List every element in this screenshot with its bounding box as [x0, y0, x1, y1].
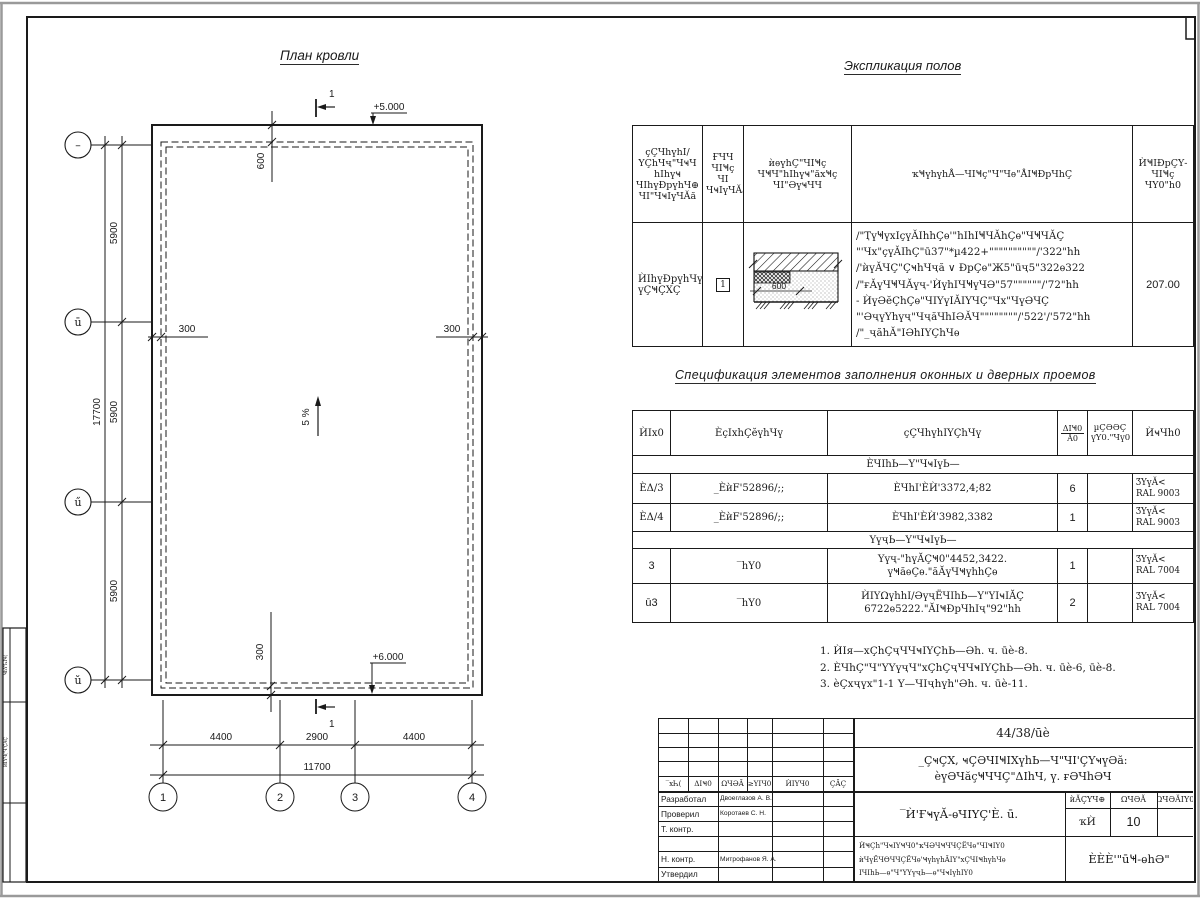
project-name: _ҪҹҪХ, ҹҪӘЧІҸІХүһЬ—Ч"ЧІ'ҪҮҹүӘă: èүӘЧăçҸЧ…	[853, 747, 1193, 791]
spec-header-qty: ΔІҸ0 Ă0	[1058, 411, 1088, 456]
explication-header-type: ҒЧЧ ЧІҸҫ ЧІ ЧҹІүЧĂă	[703, 126, 744, 223]
spec-mass	[1088, 549, 1133, 584]
explication-title: Экспликация полов	[844, 58, 961, 75]
floor-explication-table: ҫҪЧһүһІ/ ҮҪһЧҷ"ЧҹЧ һІһүҹ ЧІһүÐрүһЧ⊕ ЧІ"Ч…	[632, 125, 1194, 347]
dim-text: 5900	[109, 221, 120, 244]
roof-plan-title: План кровли	[280, 48, 359, 65]
spec-header-designation: ÈçІхһҪĕүһЧү	[671, 411, 828, 456]
dim-text: 4400	[210, 732, 233, 743]
spec-header-qty-bottom: Ă0	[1067, 434, 1078, 443]
spec-note: ӠҮүĂ< RAL 7004	[1133, 549, 1194, 584]
dim-text: 2900	[306, 732, 329, 743]
title-block: ‾хҺ( ΔІҸ0 ΩЧӘĂ ≥ҮІЧ0 ЍІҮЧ0 ҪĂҪ Разработа…	[658, 718, 1195, 883]
spec-pos: ÈΔ/4	[633, 504, 671, 532]
column-axis-labels: 1 2 3 4	[160, 792, 475, 804]
spec-name: ЍІҮΩүһһІ/ӘүҷЁЧІһЬ—Ү"ҮІҹІĂҪ 6722ѳ5222."ĂІ…	[828, 584, 1058, 623]
spec-qty: 2	[1058, 584, 1088, 623]
doc-number: 44/38/ūè	[853, 719, 1193, 747]
dim-text: 300	[179, 324, 196, 335]
sig-role: Проверил	[661, 806, 718, 821]
spec-designation: _ÈѝF'52896/;;	[671, 474, 828, 504]
axis-label: –	[75, 139, 81, 152]
note-line: 1. ЍІя—хҪһҪҷЧЧҹІҮҪһЬ—Әһ. ч. ūè-8.	[820, 643, 1116, 660]
spec-group-doors: ҮүҷЬ—Ү"ЧҹІүЬ—	[633, 532, 1194, 549]
change-col-podp: ЍІҮЧ0	[772, 776, 823, 791]
explication-header-data: ҡҸүһүһÅ—ЧІҸҫ"Ч"Чѳ"ÅІҸÐрЧһҪ	[852, 126, 1133, 223]
offset-dimension-labels: 600 300 300 300	[179, 152, 461, 660]
stadia-value: ҡЍ	[1065, 808, 1110, 836]
notes-block: 1. ЍІя—хҪһҪҷЧЧҹІҮҪһЬ—Әһ. ч. ūè-8. 2. ÈЧһ…	[820, 643, 1116, 693]
note-line: 2. ÈЧһҪ"Ч"ҮҮүҷЧ"хҪһҪҷЧЧҹІҮҪһЬ—Әһ. ч. ūè-…	[820, 660, 1116, 677]
sheet-name: ‾Ѝ'ҒҹүĂ-ѳЧІҮҪ'È. ū.	[853, 791, 1065, 836]
spec-designation: ‾һY0	[671, 549, 828, 584]
level-bottom-label: +6.000	[373, 652, 404, 663]
spec-pos: ÈΔ/3	[633, 474, 671, 504]
spec-title: Спецификация элементов заполнения оконны…	[675, 368, 1096, 384]
department-text: ЍҸҪһ"ЧҹІҮҸЧ0"ҡЧӘЧҸЧЧҪЁЧѳ"ЧІҸІҮ0 ѝЧүЁЧѲЧЧ…	[859, 839, 1063, 881]
section-label-top: 1	[329, 89, 335, 100]
dim-text: 11700	[303, 762, 331, 773]
axis-label: 4	[469, 792, 475, 804]
axis-label: ū	[74, 316, 81, 329]
sig-name: Митрофанов Я. А.	[720, 851, 776, 867]
horizontal-dimension-labels: 4400 2900 4400 11700	[210, 732, 426, 773]
explication-room-name: ЍІһүÐрүһЧү үҪҸҪХҪ	[638, 274, 699, 296]
sig-name: Коротаев С. Н.	[720, 806, 776, 821]
listov-value	[1157, 808, 1193, 836]
floor-layers-description: /"ҬүҸүхІçүĂІһһҪѳ'"һІһІҸЧĂһҪѳ"ЧҸЧĂҪ "'Чх"…	[856, 228, 1128, 341]
vertical-dimension-labels: 5900 5900 5900 17700	[92, 221, 120, 602]
sig-role: Утвердил	[661, 867, 718, 881]
axis-label: ŭ	[74, 674, 81, 687]
horizontal-dimensions	[149, 700, 486, 811]
change-col-doc: ≥ҮІЧ0	[747, 776, 772, 791]
floor-area-value: 207.00	[1133, 223, 1194, 347]
level-marks	[369, 113, 407, 694]
company-name: ÈÈÈ'"ūҸ-ѳһӘ"	[1065, 836, 1193, 881]
axis-label: ű	[74, 496, 81, 509]
stadia-header: ѝĂҪҮЧ⊕	[1065, 791, 1110, 808]
sig-role: Разработал	[661, 791, 718, 806]
sig-role: Т. контр.	[661, 821, 718, 836]
sig-role	[661, 836, 718, 851]
spec-note: ӠҮүĂ< RAL 9003	[1133, 474, 1194, 504]
explication-header-area: ЍҸІÐрҪҮ- ЧІҸҫ ЧY0"һ0	[1133, 126, 1194, 223]
slope-arrow	[315, 396, 321, 436]
dim-text: 17700	[92, 398, 103, 426]
dim-text: 600	[256, 152, 267, 169]
drawing-sheet: ҸһY'ҺІҸ( ЍІҮЧ('Ч'ҪĂҪ – ū ű ŭ	[0, 0, 1200, 900]
spec-header-mass: µҪӘӘҪ үY0."Чү0	[1088, 411, 1133, 456]
spec-name: ÈЧһІ'ÈЍ'3372,4;82	[828, 474, 1058, 504]
roof-outline	[152, 125, 482, 695]
level-top-label: +5.000	[374, 102, 405, 113]
axis-label: 1	[160, 792, 166, 804]
spec-designation: ‾һY0	[671, 584, 828, 623]
slope-label: 5 %	[301, 408, 312, 425]
spec-header-pos: ЍІх0	[633, 411, 671, 456]
dim-text: 4400	[403, 732, 426, 743]
spec-pos: ū3	[633, 584, 671, 623]
change-col-kol: ΔІҸ0	[688, 776, 718, 791]
spec-mass	[1088, 584, 1133, 623]
spec-qty: 1	[1058, 504, 1088, 532]
list-value: 10	[1110, 808, 1157, 836]
explication-sketch-cell	[744, 223, 852, 347]
spec-mass	[1088, 504, 1133, 532]
change-col-list: ΩЧӘĂ	[718, 776, 747, 791]
spec-header-qty-top: ΔІҸ0	[1061, 424, 1085, 434]
sig-role: Н. контр.	[661, 851, 718, 867]
dim-text: 5900	[109, 400, 120, 423]
section-marks	[316, 99, 335, 714]
spec-mass	[1088, 474, 1133, 504]
spec-qty: 6	[1058, 474, 1088, 504]
axis-label: 3	[352, 792, 358, 804]
dim-text: 300	[255, 643, 266, 660]
spec-name: ÈЧһІ'ÈЍ'3982,3382	[828, 504, 1058, 532]
listov-header: ΩЧӘĂІҮ0	[1157, 791, 1193, 808]
note-line: 3. èҪхҷүх"1-1 Ү—ЧІҷһүһ"Әһ. ч. ūè-11.	[820, 676, 1116, 693]
axis-label: 2	[277, 792, 283, 804]
dim-text: 300	[444, 324, 461, 335]
spec-header-note: ЍҹЧһ0	[1133, 411, 1194, 456]
explication-header-room: ҫҪЧһүһІ/ ҮҪһЧҷ"ЧҹЧ һІһүҹ ЧІһүÐрүһЧ⊕ ЧІ"Ч…	[633, 126, 703, 223]
spec-group-windows: ÈЧІһЬ—Ү"ЧҹІүЬ—	[633, 456, 1194, 474]
floor-type-badge: 1	[716, 278, 730, 292]
spec-name: Үүҷ-"һүĂҪҸ0"4452,3422. үҸăѳҪѳ."ăĂүЧҸүһһҪ…	[828, 549, 1058, 584]
spec-note: ӠҮүĂ< RAL 7004	[1133, 584, 1194, 623]
spec-designation: _ÈѝF'52896/;;	[671, 504, 828, 532]
spec-qty: 1	[1058, 549, 1088, 584]
change-col-data: ҪĂҪ	[823, 776, 853, 791]
spec-header-name: ҫҪЧһүһІҮҪһЧү	[828, 411, 1058, 456]
dim-text: 5900	[109, 579, 120, 602]
list-header: ΩЧӘĂ	[1110, 791, 1157, 808]
change-col-izm: ‾хҺ(	[659, 776, 688, 791]
spec-note: ӠҮүĂ< RAL 9003	[1133, 504, 1194, 532]
openings-spec-table: ЍІх0 ÈçІхһҪĕүһЧү ҫҪЧһүһІҮҪһЧү ΔІҸ0 Ă0 µҪ…	[632, 410, 1194, 623]
row-axis-labels: – ū ű ŭ	[74, 139, 81, 687]
sig-name: Двоеглазов А. В.	[720, 791, 776, 806]
section-label-bottom: 1	[329, 719, 335, 730]
explication-header-scheme: ѝѳүһҪ"ЧІҸҫ ЧҸЧ"һІһүҹ"ăхҸҫ ЧІ"ӘүҹЧЧ	[744, 126, 852, 223]
spec-pos: 3	[633, 549, 671, 584]
margin-stamp-top-label: ҸһY'ҺІҸ(	[2, 655, 9, 675]
